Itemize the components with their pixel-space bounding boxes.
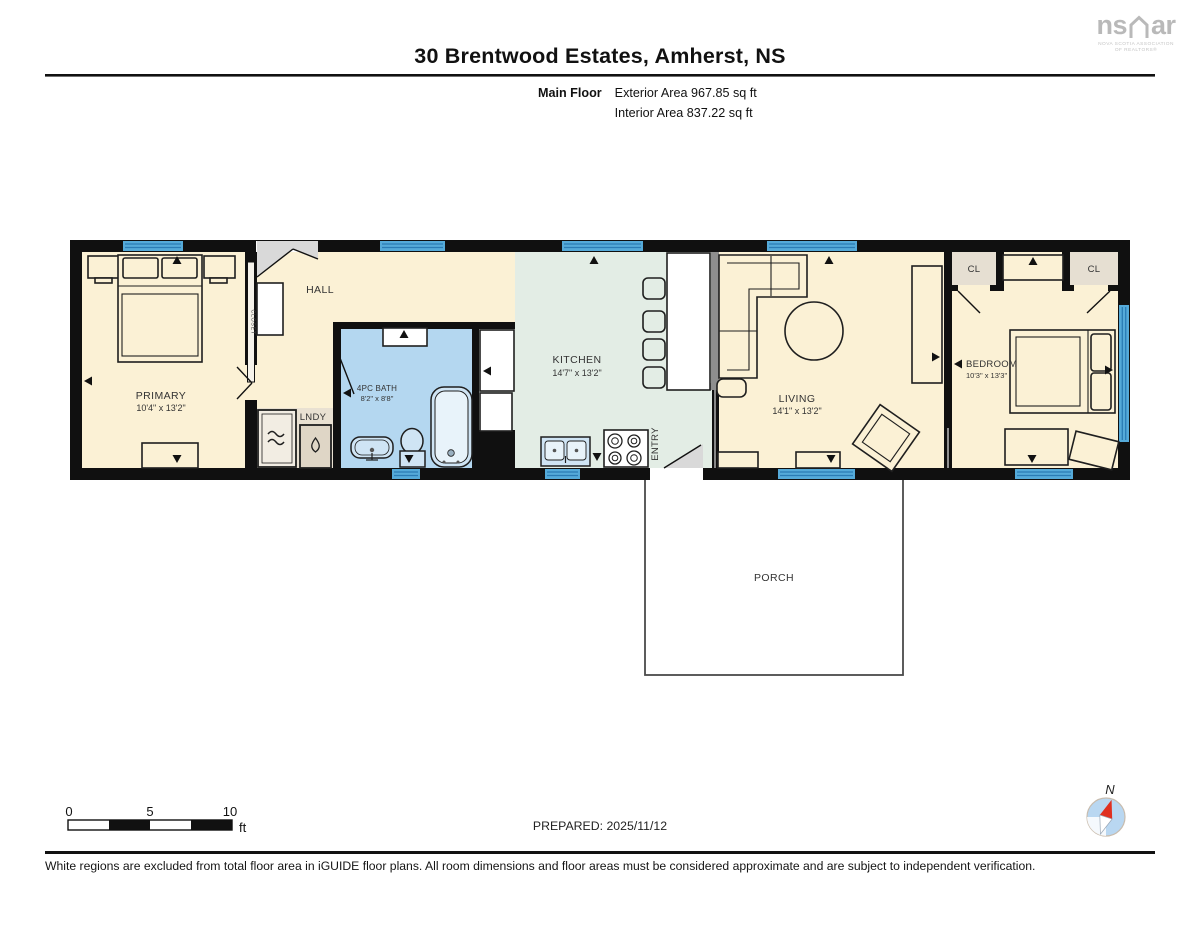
scale-tick-0: 0 — [65, 804, 72, 819]
primary-closet: CLOSET — [248, 262, 256, 382]
primary-bed — [118, 255, 202, 362]
toilet — [400, 429, 425, 468]
window-hall-top — [380, 241, 445, 251]
closet-left-label: CL — [968, 264, 981, 275]
console-table — [718, 452, 758, 468]
kitchen-cabinet — [480, 393, 512, 431]
window-bedroom-right — [1119, 305, 1129, 442]
porch: PORCH — [645, 479, 903, 675]
primary-label: PRIMARY — [136, 390, 186, 402]
footer-rule — [45, 851, 1155, 854]
scale-unit: ft — [239, 820, 247, 835]
washer — [258, 410, 296, 467]
porch-label: PORCH — [754, 572, 794, 584]
nightstand — [204, 256, 235, 278]
window-bath-bottom — [392, 469, 420, 479]
compass: N — [1087, 782, 1125, 836]
nightstand — [88, 256, 119, 278]
scale-tick-5: 5 — [146, 804, 153, 819]
closet-right-label: CL — [1088, 264, 1101, 275]
bath-sink — [351, 437, 393, 460]
hall-label: HALL — [306, 284, 334, 296]
ottoman — [717, 379, 746, 397]
kitchen-island — [667, 253, 710, 390]
kitchen-sink — [541, 437, 590, 466]
window-primary-top — [123, 241, 183, 251]
kitchen-dims: 14'7" x 13'2" — [552, 368, 601, 378]
scale-tick-10: 10 — [223, 804, 237, 819]
floor-plan: PORCH — [0, 0, 1200, 927]
nightstand-foot — [95, 278, 112, 283]
window-living-bottom — [778, 469, 855, 479]
fridge — [480, 330, 514, 391]
console-table — [796, 452, 840, 468]
dryer — [300, 425, 331, 468]
bath-label: 4PC BATH — [357, 384, 397, 393]
scale-bar: 0 5 10 ft — [65, 804, 246, 835]
floor-plan-page: 30 Brentwood Estates, Amherst, NS Main F… — [0, 0, 1200, 927]
bedroom-bed — [1010, 330, 1115, 413]
bedroom-dims: 10'3" x 13'3" — [966, 371, 1007, 380]
kitchen-label: KITCHEN — [553, 354, 602, 366]
header-rule — [45, 74, 1155, 77]
living-label: LIVING — [779, 393, 816, 405]
hall-cabinet — [257, 283, 283, 335]
window-bedroom-bottom — [1015, 469, 1073, 479]
window-kitchen-top — [562, 241, 643, 251]
window-kitchen-bottom — [545, 469, 580, 479]
compass-north-label: N — [1105, 782, 1115, 797]
bedroom-dresser-bottom — [1005, 429, 1068, 465]
bathtub — [431, 387, 472, 467]
round-table — [785, 302, 843, 360]
window-living-top — [767, 241, 857, 251]
bedroom-label: BEDROOM — [966, 359, 1017, 370]
stove — [604, 430, 648, 467]
primary-dims: 10'4" x 13'2" — [136, 403, 185, 413]
living-dims: 14'1" x 13'2" — [772, 406, 821, 416]
laundry-label: LNDY — [300, 412, 327, 423]
living-cabinet — [912, 266, 942, 383]
primary-closet-label: CLOSET — [250, 309, 256, 334]
bath-dims: 8'2" x 8'8" — [361, 394, 394, 403]
entry-label: ENTRY — [650, 427, 661, 461]
primary-dresser — [142, 443, 198, 468]
nightstand-foot — [210, 278, 227, 283]
